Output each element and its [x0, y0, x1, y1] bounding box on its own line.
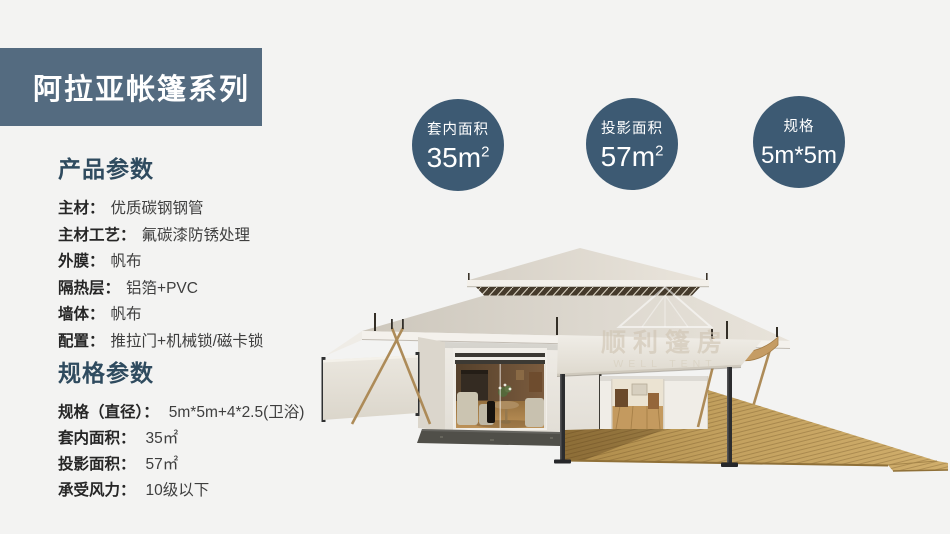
product-sheet-page: 阿拉亚帐篷系列 套内面积 35m2 投影面积 57m2 规格 5m*5m 产品参…: [0, 0, 950, 534]
left-roof-tip: [325, 331, 362, 356]
param-row: 配置：推拉门+机械锁/磁卡锁: [58, 329, 263, 356]
param-row: 规格（直径）：5m*5m+4*2.5(卫浴): [58, 400, 304, 426]
param-row: 外膜：帆布: [58, 249, 263, 276]
series-title: 阿拉亚帐篷系列: [33, 66, 250, 108]
spec-params-section: 规格参数 规格（直径）：5m*5m+4*2.5(卫浴) 套内面积：35㎡ 投影面…: [58, 354, 304, 504]
cap-roof: [469, 248, 707, 280]
left-corner-wall: [418, 337, 445, 431]
series-title-banner: 阿拉亚帐篷系列: [0, 48, 262, 126]
watermark-cn: 顺利篷房: [601, 328, 729, 357]
param-row: 承受风力：10级以下: [58, 478, 304, 504]
stat-value: 57m2: [586, 141, 678, 173]
stat-circle-size: 规格 5m*5m: [753, 96, 845, 188]
stat-label: 规格: [753, 115, 845, 136]
param-row: 套内面积：35㎡: [58, 426, 304, 452]
armchair: [525, 398, 544, 427]
stat-value: 5m*5m: [753, 142, 845, 170]
cap-fascia: [467, 280, 709, 287]
spec-params-title: 规格参数: [58, 354, 304, 388]
param-row: 主材：优质碳钢钢管: [58, 196, 263, 223]
stat-circle-inner-area: 套内面积 35m2: [412, 99, 504, 191]
product-params-title: 产品参数: [58, 150, 263, 184]
param-row: 投影面积：57㎡: [58, 452, 304, 478]
cabinet: [529, 372, 542, 392]
stat-label: 投影面积: [586, 117, 678, 138]
tent-render-illustration: 顺利篷房 WELL TENT: [320, 243, 950, 515]
round-table: [493, 401, 519, 409]
param-row: 墙体：帆布: [58, 302, 263, 329]
stat-value: 35m2: [412, 142, 504, 174]
param-row: 主材工艺：氟碳漆防锈处理: [58, 223, 263, 250]
stat-circle-projection-area: 投影面积 57m2: [586, 98, 678, 190]
porch-doorway: [611, 379, 665, 429]
tent-illustration-svg: 顺利篷房 WELL TENT: [320, 243, 950, 515]
watermark-en: WELL TENT: [613, 358, 716, 370]
stat-label: 套内面积: [412, 118, 504, 139]
param-row: 隔热层：铝箔+PVC: [58, 276, 263, 303]
product-params-section: 产品参数 主材：优质碳钢钢管 主材工艺：氟碳漆防锈处理 外膜：帆布 隔热层：铝箔…: [58, 150, 263, 355]
armchair: [457, 392, 478, 425]
living-room-window: [453, 348, 547, 430]
